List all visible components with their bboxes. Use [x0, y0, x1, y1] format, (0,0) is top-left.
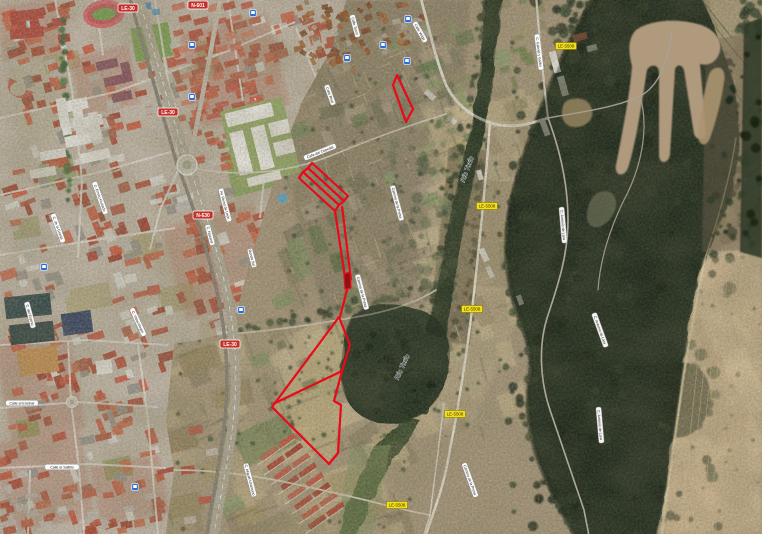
svg-text:LE-5508: LE-5508 — [479, 204, 496, 209]
svg-text:LE-30: LE-30 — [121, 6, 135, 12]
svg-text:LE-30: LE-30 — [161, 110, 175, 116]
svg-text:N-630: N-630 — [196, 213, 210, 219]
svg-text:N-601: N-601 — [191, 3, 205, 9]
svg-text:LE-5508: LE-5508 — [389, 503, 406, 508]
svg-text:Calle el Encinar: Calle el Encinar — [9, 401, 35, 405]
svg-text:LE-5508: LE-5508 — [447, 412, 464, 417]
svg-text:Calle el Saltillo: Calle el Saltillo — [50, 465, 74, 469]
svg-text:LE-30: LE-30 — [223, 342, 237, 348]
svg-text:LE-5508: LE-5508 — [464, 307, 481, 312]
svg-text:LE-5508: LE-5508 — [558, 44, 575, 49]
